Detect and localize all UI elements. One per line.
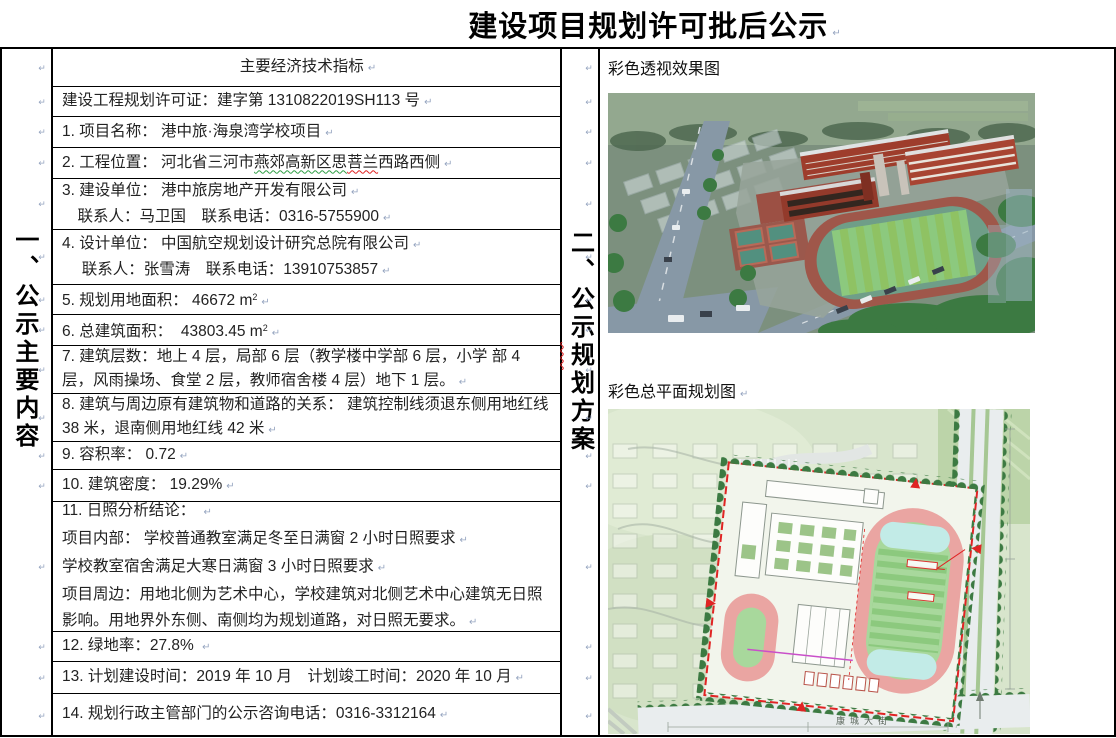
table-cell-paragraph: 10. 建筑密度： 19.29% — [62, 473, 554, 499]
table-row: 2. 工程位置： 河北省三河市燕郊高新区思菩兰西路西侧 — [53, 148, 560, 179]
title-bar: 建设项目规划许可批后公示 — [0, 0, 1116, 47]
paragraph-mark: ↵ — [585, 452, 593, 461]
plan-image-label: 彩色总平面规划图 — [608, 378, 1114, 402]
master-plan-image: 康城大街 — [608, 409, 1030, 734]
table-cell-paragraph: 建设工程规划许可证：建字第 1310822019SH113 号 — [62, 89, 554, 115]
table-row: 11. 日照分析结论： 项目内部： 学校普通教室满足冬至日满窗 2 小时日照要求… — [53, 502, 560, 632]
paragraph-mark: ↵ — [38, 159, 46, 168]
table-row: 14. 规划行政主管部门的公示咨询电话：0316-3312164 — [53, 694, 560, 735]
paragraph-mark: ↵ — [38, 643, 46, 652]
table-cell-paragraph: 13. 计划建设时间：2019 年 10 月 计划竣工时间：2020 年 10 … — [62, 665, 554, 691]
paragraph-mark: ↵ — [38, 482, 46, 491]
paragraph-mark: ↵ — [38, 200, 46, 209]
table-cell-paragraph: 9. 容积率： 0.72 — [62, 443, 554, 469]
table-row: 12. 绿地率：27.8% — [53, 632, 560, 662]
indicator-table: 主要经济技术指标建设工程规划许可证：建字第 1310822019SH113 号1… — [53, 49, 562, 735]
paragraph-mark: ↵ — [38, 712, 46, 721]
paragraph-mark: ↵ — [38, 366, 46, 375]
paragraph-mark: ↵ — [38, 296, 46, 305]
left-section-column: 一、公示主要内容 ↵↵↵↵↵↵↵↵↵↵↵↵↵↵↵↵ — [0, 49, 53, 735]
table-cell-paragraph: 联系人：马卫国 联系电话：0316-5755900 — [62, 205, 554, 231]
table-cell-paragraph: 4. 设计单位： 中国航空规划设计研究总院有限公司 — [62, 232, 554, 258]
paragraph-mark: ↵ — [585, 64, 593, 73]
table-cell-paragraph: 11. 日照分析结论： — [62, 498, 554, 526]
table-cell-paragraph: 项目内部： 学校普通教室满足冬至日满窗 2 小时日照要求 — [62, 526, 554, 554]
plans-panel: 彩色透视效果图 — [600, 49, 1116, 735]
paragraph-mark: ↵ — [585, 296, 593, 305]
paragraph-mark: ↵ — [585, 326, 593, 335]
right-section-column: 二、公示规划方案 ↵↵↵↵↵↵↵↵↵↵↵↵↵↵↵↵ — [562, 49, 600, 735]
school-site — [696, 454, 988, 729]
table-cell-paragraph: 1. 项目名称： 港中旅·海泉湾学校项目 — [62, 120, 554, 146]
notice-page: 建设项目规划许可批后公示 一、公示主要内容 ↵↵↵↵↵↵↵↵↵↵↵↵↵↵↵↵ 主… — [0, 0, 1116, 737]
table-row: 4. 设计单位： 中国航空规划设计研究总院有限公司 联系人：张雪涛 联系电话：1… — [53, 230, 560, 285]
ghost-tower — [1006, 189, 1032, 301]
paragraph-mark: ↵ — [585, 200, 593, 209]
table-cell-paragraph: 14. 规划行政主管部门的公示咨询电话：0316-3312164 — [62, 702, 554, 728]
table-cell-paragraph: 学校教室宿舍满足大寒日满窗 3 小时日照要求 — [62, 554, 554, 582]
paragraph-mark: ↵ — [585, 98, 593, 107]
table-row: 13. 计划建设时间：2019 年 10 月 计划竣工时间：2020 年 10 … — [53, 662, 560, 694]
table-cell-paragraph: 5. 规划用地面积： 46672 m2 — [62, 285, 554, 315]
table-row: 主要经济技术指标 — [53, 49, 560, 87]
table-row: 建设工程规划许可证：建字第 1310822019SH113 号 — [53, 87, 560, 117]
table-row: 9. 容积率： 0.72 — [53, 442, 560, 470]
table-cell-paragraph: 12. 绿地率：27.8% — [62, 634, 554, 660]
paragraph-mark: ↵ — [38, 674, 46, 683]
perspective-rendering-image — [608, 93, 1035, 333]
paragraph-mark: ↵ — [585, 674, 593, 683]
table-cell-paragraph: 主要经济技术指标 — [240, 55, 376, 81]
perspective-image-label: 彩色透视效果图 — [608, 55, 1114, 79]
table-cell-paragraph: 2. 工程位置： 河北省三河市燕郊高新区思菩兰西路西侧 — [62, 151, 554, 177]
paragraph-mark: ↵ — [585, 159, 593, 168]
table-row: 6. 总建筑面积： 43803.45 m2 — [53, 315, 560, 346]
paragraph-mark: ↵ — [585, 366, 593, 375]
paragraph-mark: ↵ — [585, 414, 593, 423]
table-row: 8. 建筑与周边原有建筑物和道路的关系： 建筑控制线须退东侧用地红线 38 米，… — [53, 394, 560, 442]
table-cell-paragraph: 7. 建筑层数：地上 4 层，局部 6 层（教学楼中学部 6 层，小学 部 4 … — [62, 345, 554, 395]
paragraph-mark: ↵ — [585, 712, 593, 721]
table-cell-paragraph: 项目周边：用地北侧为艺术中心，学校建筑对北侧艺术中心建筑无日照影响。用地界外东侧… — [62, 582, 554, 636]
page-title: 建设项目规划许可批后公示 — [468, 3, 841, 45]
paragraph-mark: ↵ — [585, 482, 593, 491]
table-row: 7. 建筑层数：地上 4 层，局部 6 层（教学楼中学部 6 层，小学 部 4 … — [53, 346, 560, 394]
table-cell-paragraph: 联系人：张雪涛 联系电话：13910753857 — [62, 258, 554, 284]
mid-pilcrow-column: ↵↵↵↵↵↵↵↵↵↵↵↵↵↵↵↵ — [582, 49, 596, 738]
paragraph-mark: ↵ — [585, 128, 593, 137]
document-body: 一、公示主要内容 ↵↵↵↵↵↵↵↵↵↵↵↵↵↵↵↵ 主要经济技术指标建设工程规划… — [0, 47, 1116, 737]
paragraph-mark: ↵ — [38, 128, 46, 137]
table-row: 5. 规划用地面积： 46672 m2 — [53, 285, 560, 315]
paragraph-mark: ↵ — [38, 64, 46, 73]
table-cell-paragraph: 6. 总建筑面积： 43803.45 m2 — [62, 316, 554, 346]
left-pilcrow-column: ↵↵↵↵↵↵↵↵↵↵↵↵↵↵↵↵ — [35, 49, 49, 738]
paragraph-mark: ↵ — [585, 563, 593, 572]
paragraph-mark: ↵ — [585, 643, 593, 652]
paragraph-mark: ↵ — [38, 452, 46, 461]
paragraph-mark: ↵ — [38, 563, 46, 572]
paragraph-mark: ↵ — [38, 98, 46, 107]
paragraph-mark: ↵ — [38, 326, 46, 335]
table-cell-paragraph: 8. 建筑与周边原有建筑物和道路的关系： 建筑控制线须退东侧用地红线 38 米，… — [62, 393, 554, 443]
table-row: 3. 建设单位： 港中旅房地产开发有限公司 联系人：马卫国 联系电话：0316-… — [53, 179, 560, 230]
table-row: 1. 项目名称： 港中旅·海泉湾学校项目 — [53, 117, 560, 148]
paragraph-mark: ↵ — [585, 253, 593, 262]
table-cell-paragraph: 3. 建设单位： 港中旅房地产开发有限公司 — [62, 179, 554, 205]
paragraph-mark: ↵ — [38, 414, 46, 423]
paragraph-mark: ↵ — [38, 253, 46, 262]
